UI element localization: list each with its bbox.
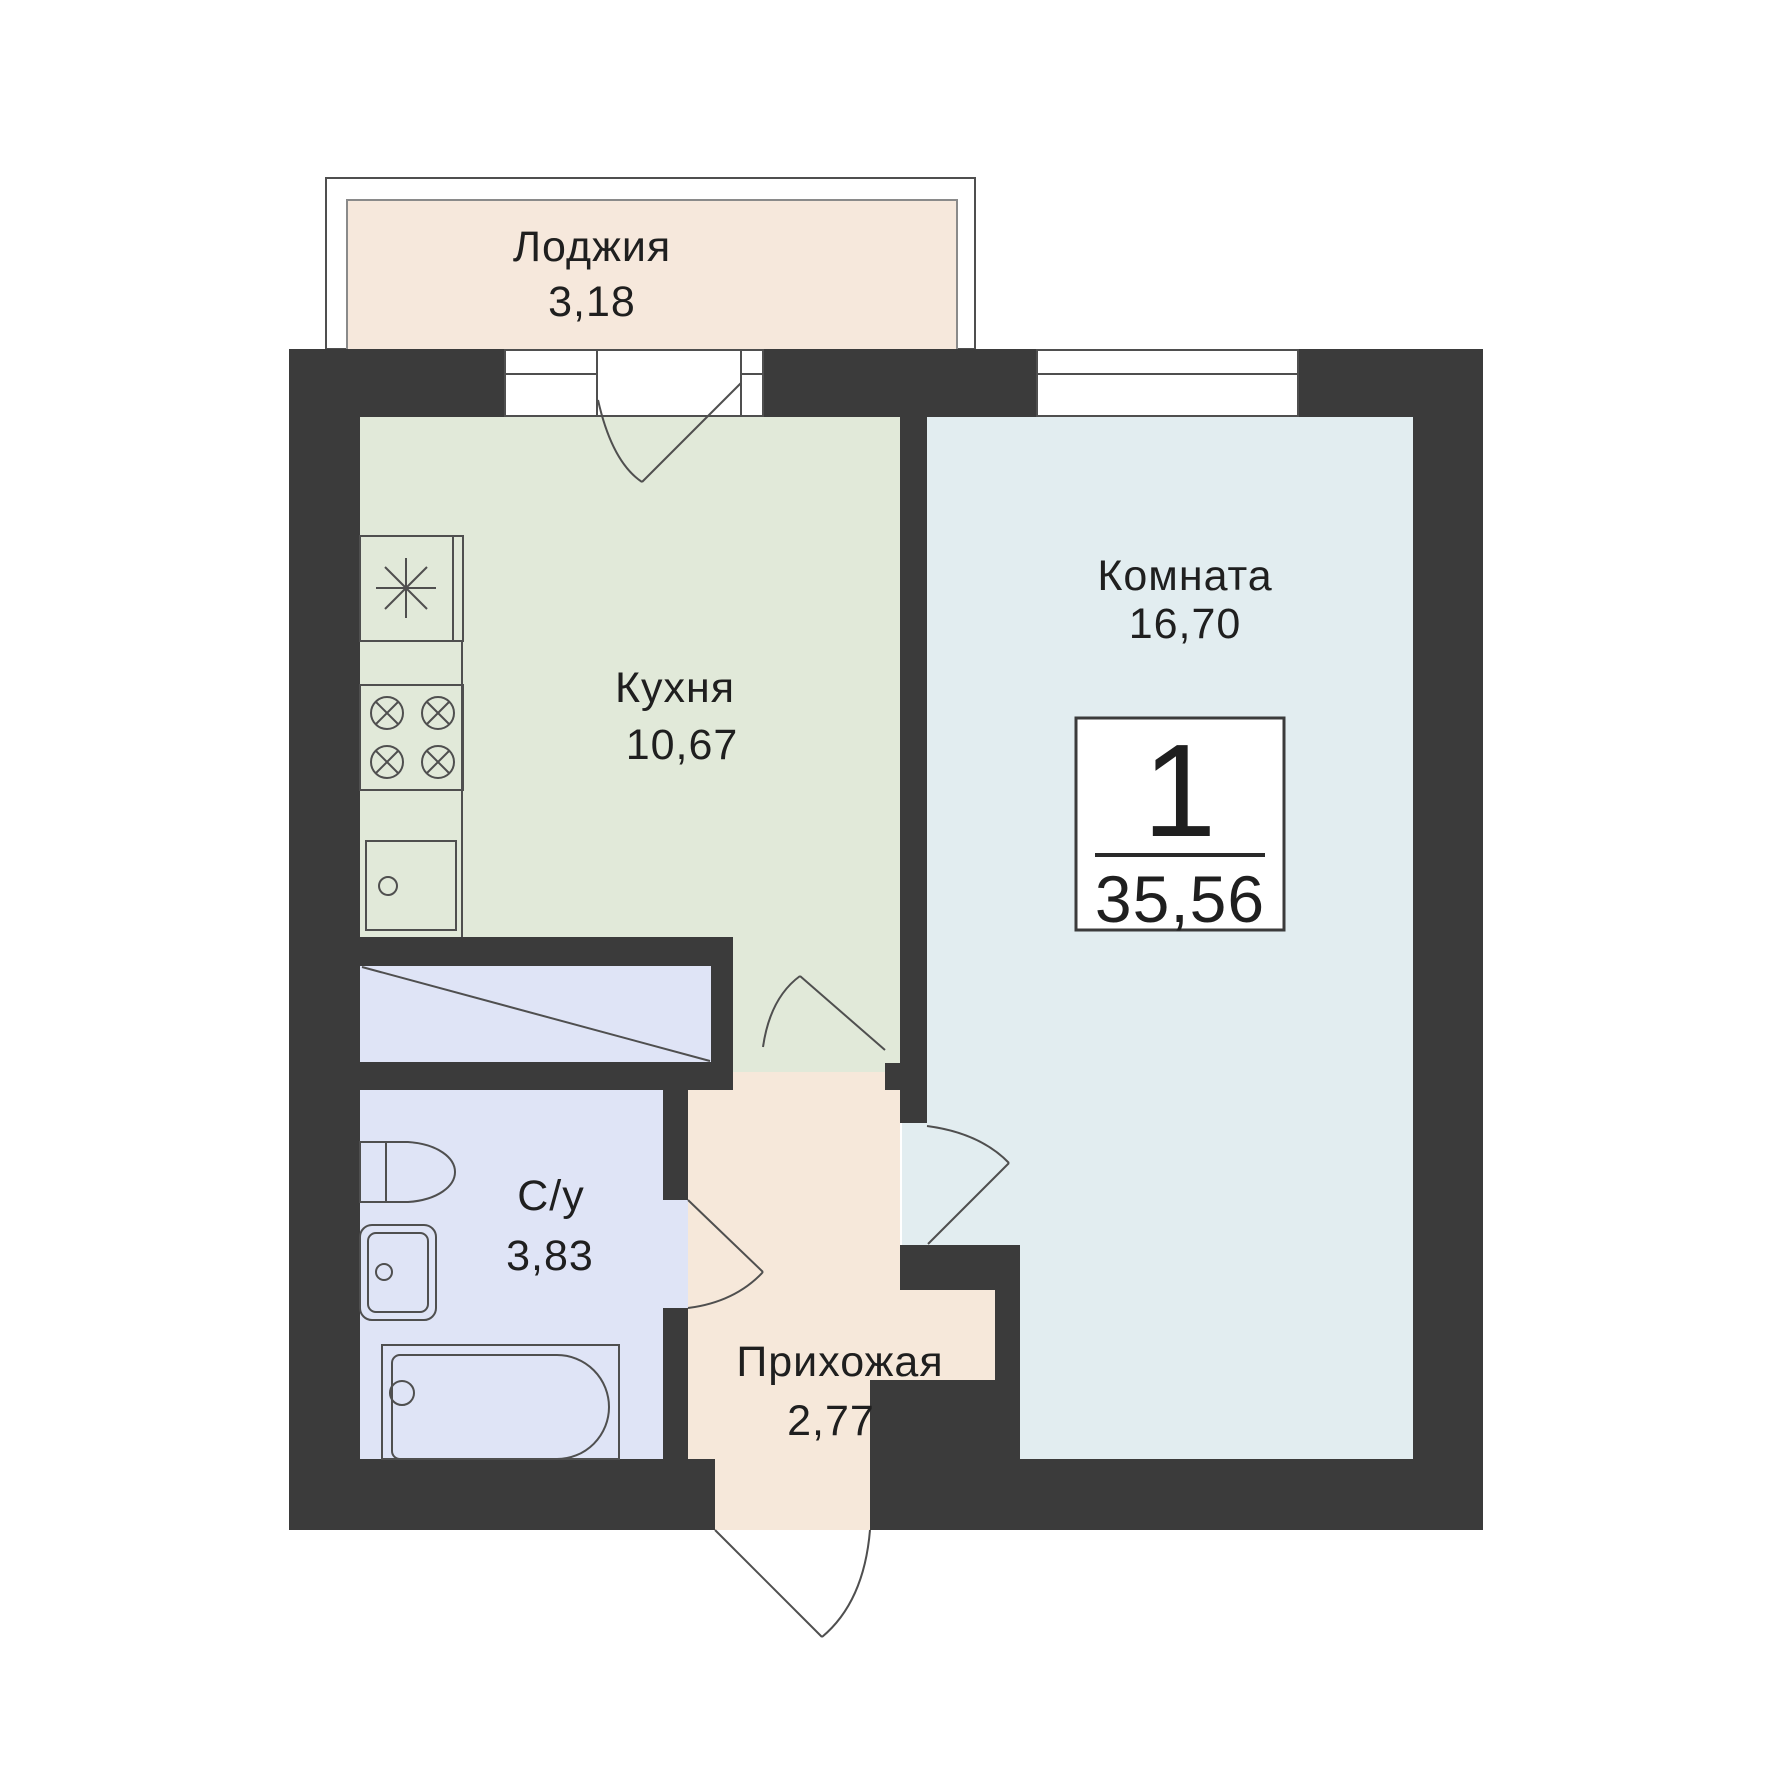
bathroom-area: 3,83 (506, 1232, 594, 1280)
badge-rooms-count: 1 (1143, 717, 1217, 864)
snowflake-icon (376, 558, 436, 618)
wall-segment (289, 1459, 715, 1530)
wall-segment (663, 1308, 688, 1460)
wall-segment (1413, 349, 1483, 1530)
hallway-area: 2,77 (787, 1397, 875, 1445)
wall-segment (289, 1062, 733, 1090)
loggia-area: 3,18 (548, 278, 636, 326)
wall-segment (995, 1290, 1020, 1460)
wall-segment (885, 1063, 900, 1090)
badge-total-area: 35,56 (1095, 862, 1265, 936)
hallway-label: Прихожая (736, 1338, 943, 1386)
balcony-door-opening (597, 350, 741, 416)
floor-plan-svg: Лоджия 3,18 Кухня 10,67 Комната 16,70 С/… (0, 0, 1772, 1772)
bathroom-label: С/у (517, 1172, 585, 1220)
wall-segment (870, 1459, 1483, 1530)
wall-segment (900, 417, 927, 1123)
living-room-area: 16,70 (1129, 600, 1242, 648)
wall-segment (711, 937, 733, 1073)
living-room-window (1037, 350, 1298, 416)
kitchen-label: Кухня (615, 664, 735, 712)
kitchen-area: 10,67 (626, 721, 739, 769)
living-room-label: Комната (1097, 552, 1272, 600)
wall-segment (663, 1090, 688, 1200)
apartment-badge: 1 35,56 (1076, 717, 1284, 936)
loggia-label: Лоджия (513, 223, 671, 271)
wall-segment (900, 1245, 1020, 1290)
kitchen-window (505, 350, 597, 416)
floor-plan-page: Лоджия 3,18 Кухня 10,67 Комната 16,70 С/… (0, 0, 1772, 1772)
wall-segment (763, 349, 1037, 417)
wall-segment (289, 937, 733, 966)
kitchen-window-side (741, 350, 763, 416)
entrance-door-swing (715, 1530, 870, 1637)
